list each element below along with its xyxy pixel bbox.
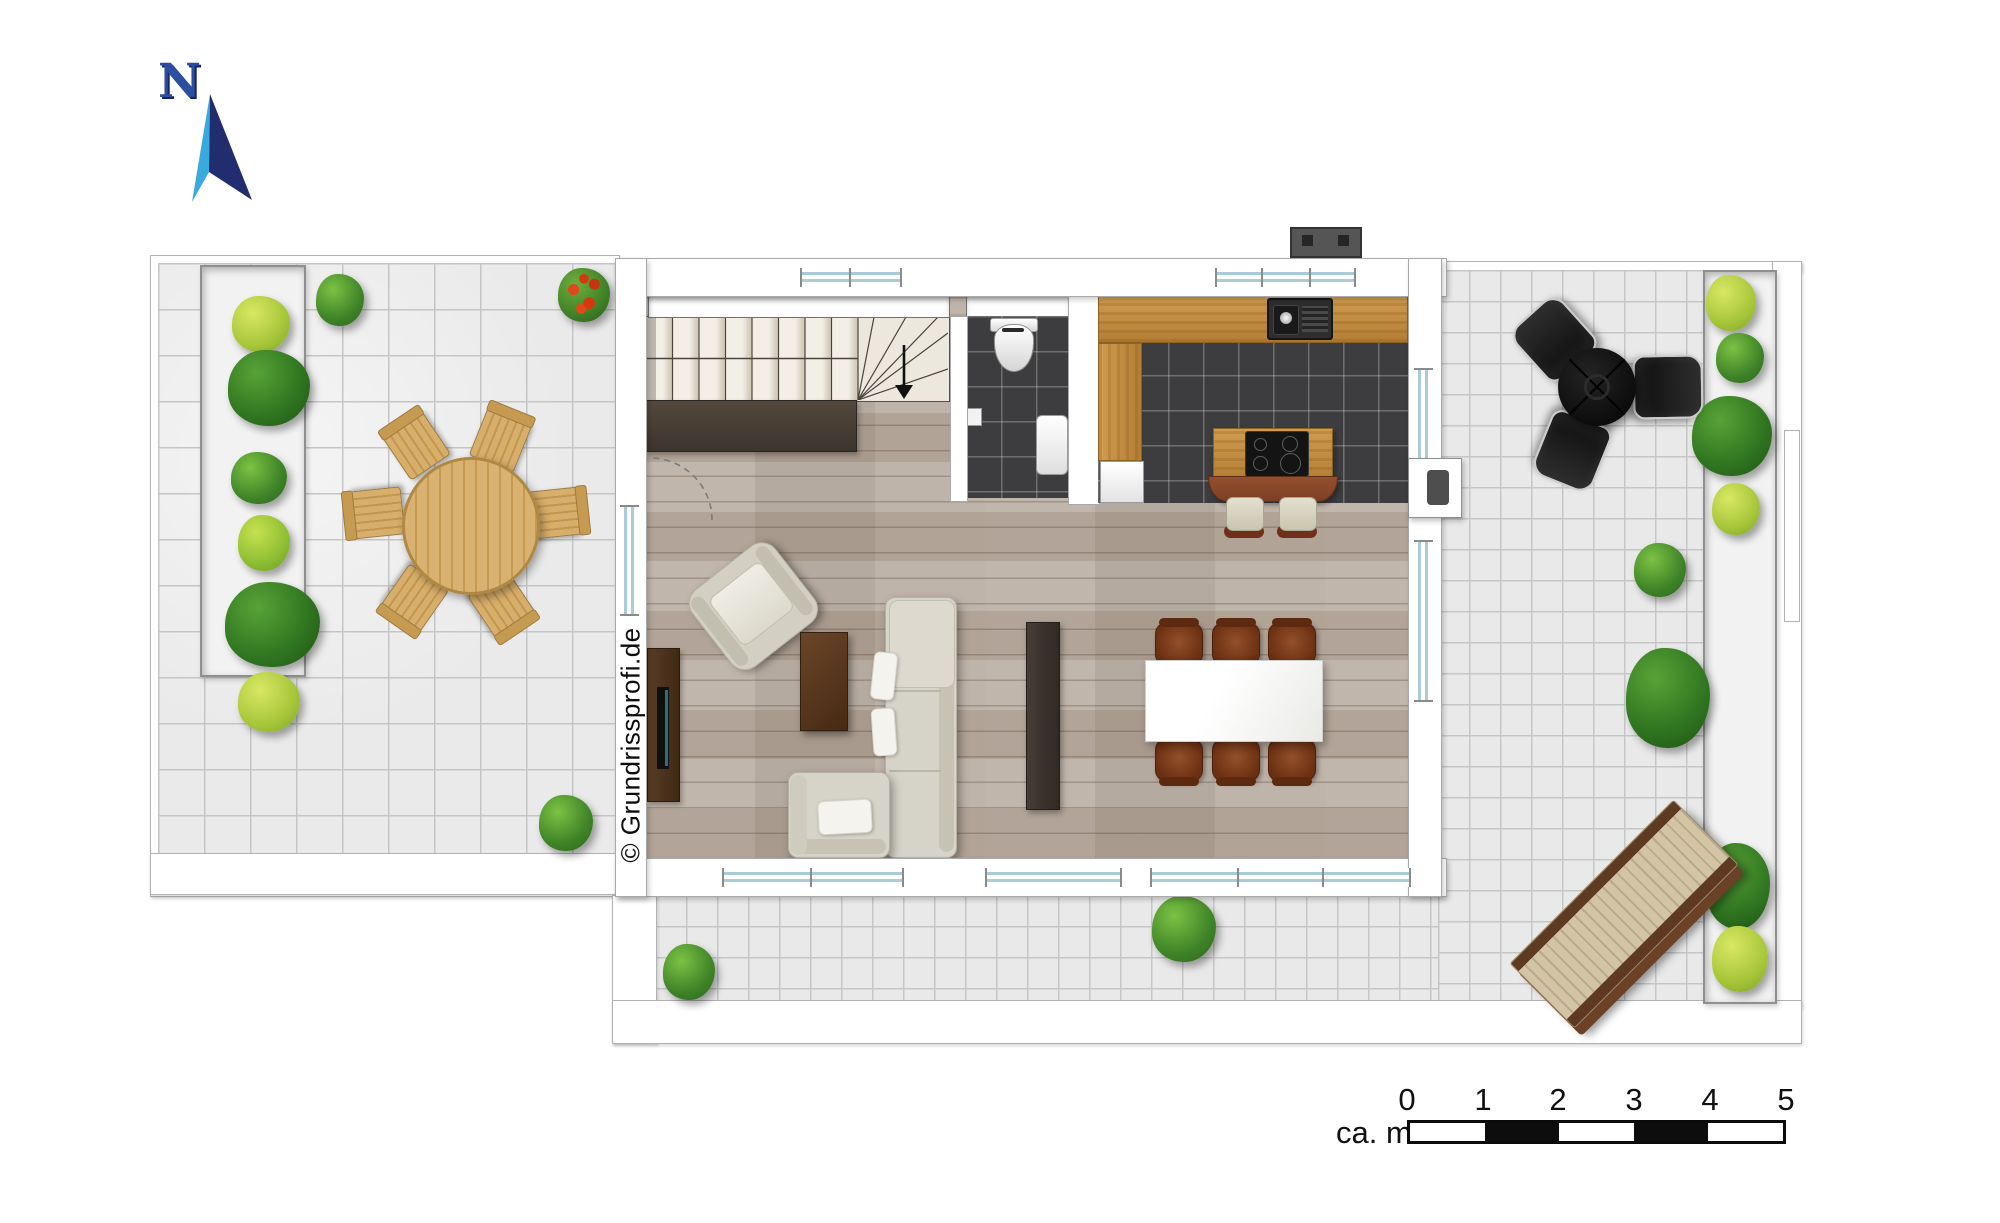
sofa-seam [889, 770, 941, 772]
bush [228, 350, 310, 426]
bush [232, 296, 290, 352]
bathroom-floor [966, 316, 1068, 498]
window-mullion [1322, 868, 1324, 887]
patio-chair [1632, 354, 1703, 419]
sink-drainboard [1302, 306, 1328, 332]
window [620, 505, 639, 616]
burner [1282, 436, 1298, 452]
garden-chair [347, 486, 406, 539]
scale-tick: 4 [1701, 1082, 1718, 1118]
coffee-table [800, 632, 848, 731]
scale-bar [1407, 1120, 1786, 1144]
dining-chair [1155, 738, 1203, 782]
sofa [885, 597, 957, 858]
bush [1706, 275, 1756, 331]
tv-sideboard [647, 648, 680, 802]
sofa-seam [889, 690, 941, 692]
scale-tick: 3 [1625, 1082, 1642, 1118]
towel-holder [967, 408, 982, 426]
scale-tick: 0 [1398, 1082, 1415, 1118]
kitchen-sink-icon [1267, 298, 1333, 340]
dining-chair [1268, 738, 1316, 782]
scale-tick: 5 [1777, 1082, 1794, 1118]
window [722, 868, 904, 887]
scale-tick: 1 [1474, 1082, 1491, 1118]
bottom-terrace-floor [655, 895, 1438, 1000]
watermark: © Grundrissprofi.de [616, 627, 647, 862]
bar-stool [1222, 497, 1266, 541]
bush [1152, 896, 1216, 962]
burner [1280, 453, 1301, 474]
window-mullion [849, 268, 851, 287]
dining-chair [1212, 738, 1260, 782]
bush [1716, 333, 1764, 383]
north-arrow-icon [164, 90, 264, 208]
niche-shelf [966, 294, 1070, 318]
window [985, 868, 1122, 887]
kitchen-appliance [1100, 461, 1144, 503]
scale-segment [1708, 1123, 1783, 1141]
toilet-lid-detail [1002, 328, 1024, 332]
stool-seat [1279, 497, 1317, 531]
patio-table [1558, 348, 1636, 426]
sofa-armrest [790, 775, 807, 855]
door-swing-icon [646, 456, 714, 524]
bar-stool [1275, 497, 1319, 541]
kitchen-counter [1098, 343, 1142, 461]
sofa-pillow [870, 651, 899, 701]
cooktop-icon [1245, 431, 1309, 477]
niche-shelf [648, 294, 950, 318]
window [1150, 868, 1411, 887]
north-indicator: N [150, 52, 270, 202]
bush [225, 582, 320, 667]
bottom-terrace-outer-wall [612, 1000, 1802, 1044]
window-mullion [810, 868, 812, 887]
stair-down-arrow-icon [895, 345, 913, 399]
stool-seat [1226, 497, 1264, 531]
window [1414, 368, 1433, 464]
wardrobe [645, 400, 857, 452]
window [1414, 540, 1433, 702]
bush [663, 944, 715, 1000]
floor-plan: N [0, 0, 2000, 1223]
interior-wall [950, 316, 968, 502]
sink-faucet [1280, 312, 1292, 324]
bush [1626, 648, 1710, 748]
garden-table [402, 457, 540, 595]
appliance-knob [1302, 235, 1313, 246]
toilet-icon [994, 324, 1034, 372]
washbasin-icon [1036, 415, 1068, 475]
staircase-lines [646, 317, 948, 400]
bush [238, 515, 290, 571]
appliance-knob [1338, 235, 1349, 246]
dining-table [1145, 660, 1323, 742]
window [800, 268, 902, 287]
window-mullion [1309, 268, 1311, 287]
kitchen-counter [1098, 295, 1408, 343]
scale-tick: 2 [1549, 1082, 1566, 1118]
scale-segment [1559, 1123, 1634, 1141]
kitchen-island [1213, 428, 1333, 480]
bush [1712, 483, 1760, 535]
bush [1692, 396, 1772, 476]
flowering-plant [558, 268, 610, 322]
burner [1254, 438, 1267, 451]
window-mullion [1237, 868, 1239, 887]
sofa-chaise [889, 600, 955, 688]
sofa-pillow [817, 799, 873, 836]
tv-icon [657, 687, 669, 769]
terrace-door [1408, 458, 1462, 518]
bush [1712, 926, 1768, 992]
burner [1253, 456, 1268, 471]
patio-table-center [1584, 374, 1610, 400]
wall-appliance [1290, 227, 1362, 258]
bush [316, 274, 364, 326]
scale-segment [1634, 1123, 1709, 1141]
bush [1634, 543, 1686, 597]
tv-screen [665, 690, 668, 766]
staircase [645, 316, 950, 402]
window-mullion [1261, 268, 1263, 287]
door-detail [1427, 470, 1449, 505]
scale-segment [1410, 1123, 1485, 1141]
sofa-pillow [870, 707, 897, 757]
interior-wall [1068, 295, 1100, 505]
window [1215, 268, 1356, 287]
terrace-gate [1784, 430, 1800, 622]
scale-segment [1485, 1123, 1560, 1141]
bush [539, 795, 593, 851]
sideboard [1026, 622, 1060, 810]
bush [231, 452, 287, 504]
bush [238, 672, 300, 732]
left-terrace-bottom-wall [150, 853, 620, 895]
